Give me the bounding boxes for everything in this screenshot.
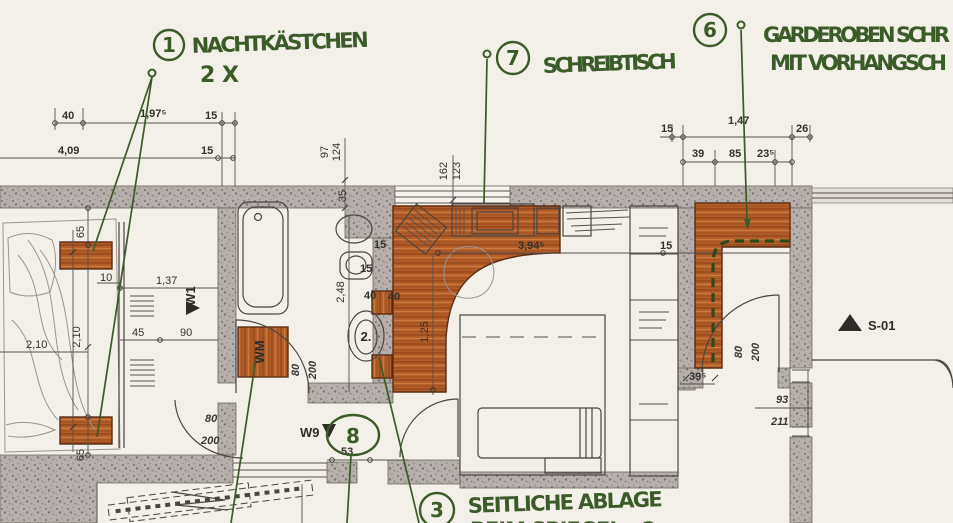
wall-bath-bottom-stub [308,383,393,403]
sofa-step [545,458,601,473]
callout-6-number: 6 [703,18,717,42]
dim-tm-35: 35 [337,190,349,202]
wall-right-mid [790,383,812,427]
room-rect [460,315,605,475]
wall-top-left [0,186,345,208]
bathtub-outer [238,202,288,314]
leader-desk [484,59,487,203]
callout-6-text2: MIT VORHANGSCH [770,51,948,75]
wall-bottom-center [460,472,678,488]
callout-6-text: GARDEROBEN SCHR [763,23,951,47]
dim-tl-40: 40 [62,110,74,122]
dim-tm-123: 123 [451,162,463,180]
dim-tm-124: 124 [331,143,343,161]
wall-bottom-seg1 [327,462,357,483]
s01-divider-line [812,360,953,386]
callout-1-number: 1 [162,33,176,57]
callout-3-text2: BEIM SPIEGEL - 2x [470,518,670,523]
callout-3: 3 SEITLICHE ABLAGE BEIM SPIEGEL - 2x [420,487,670,523]
dim-bed-137: 1,37 [156,275,177,287]
callout-1: 1 NACHTKÄSTCHEN 2X [149,27,371,88]
window-top-right [812,188,953,203]
dim-tr-85: 85 [729,148,741,160]
wall-bath-top-block [345,186,395,238]
callout-1-text: NACHTKÄSTCHEN [191,27,370,58]
sofa-bed-arm-lines [580,408,592,458]
dim-tr-235: 23⁵ [757,148,774,160]
headboard-hatch-top [130,296,154,316]
dim-desk-125: 1,25 [419,321,431,342]
dim-tr-147: 1,47 [728,115,749,127]
dim-corr-80: 80 [733,345,745,358]
dim-bed-65t: 65 [75,226,87,238]
wm-label: WM [252,340,267,363]
bed-blanket-3 [12,320,58,420]
callout-7-number: 7 [506,46,520,70]
callout-3-text: SEITLICHE ABLAGE [467,487,664,518]
dim-vest-200: 200 [200,435,220,447]
callout-8-number: 8 [346,424,360,448]
dim-bed-210v: 2,10 [71,326,83,347]
dim-bed-90: 90 [180,327,192,339]
bed-blanket-4 [40,250,95,430]
bathtub-inner [243,207,283,307]
callout-7: 7 SCHREIBTISCH [484,42,679,78]
wall-bottom-seg2 [388,460,460,484]
headboard-hatch-bottom [130,360,155,386]
nightstand-bottom [60,417,112,444]
wall-bath-left-upper [218,208,236,383]
bed-foot-scribble [6,422,55,437]
dim-tl-15b: 15 [201,145,213,157]
right-room: S-01 [812,314,953,386]
dim-right-211: 211 [770,416,789,428]
dim-bed-210h: 2,10 [26,339,47,351]
dim-bed-10: 10 [100,272,112,284]
dim-desk-40: 40 [388,291,400,303]
wardrobe [695,203,790,368]
dim-bath-15b: 15 [360,263,372,275]
sofa-bed [478,408,601,458]
dim-tm-97: 97 [319,146,331,158]
callout-7-text: SCHREIBTISCH [542,49,678,78]
w1-label: W1 [183,286,198,306]
dim-tl-409: 4,09 [58,145,79,157]
wall-right-lower [790,437,812,523]
toilet-pos-label: 2. [361,329,372,344]
center-room [460,315,605,475]
dim-corr-200: 200 [750,342,762,362]
callout-6-pin [738,22,745,29]
dim-tl-15a: 15 [205,110,217,122]
dim-tl-197: 1,97⁵ [140,108,167,120]
wall-corridor-left [678,208,695,390]
dim-tm-162: 162 [438,162,450,180]
dim-tr-39: 39 [692,148,704,160]
dim-bed-45: 45 [132,327,144,339]
dim-bath-door-80: 80 [290,363,302,376]
dim-bed-65b: 65 [75,449,87,461]
dim-bath-door-200: 200 [307,360,319,380]
callout-1-pin [149,70,156,77]
callout-7-pin [484,51,491,58]
dim-desk-394: 3,94⁵ [518,240,545,252]
dim-vest-80: 80 [205,413,218,425]
dim-corr-395: 39⁵ [689,371,706,383]
dim-bath-15a: 15 [374,239,386,251]
pens [566,210,630,231]
w9-label: W9 [300,425,320,440]
center-door-arc [400,399,458,457]
callout-1-text2: 2X [200,63,240,88]
wall-corridor-jamb [778,368,790,388]
leader-nightstand-1 [93,77,152,251]
wall-right-upper [790,208,812,368]
shelf-column-dividers [630,254,678,420]
dim-tr-26: 26 [796,123,808,135]
dim-bath-40: 40 [364,290,376,302]
s01-label: S-01 [868,318,895,333]
callout-6: 6 GARDEROBEN SCHR MIT VORHANGSCH [694,14,951,75]
s01-triangle-icon [838,314,862,331]
floor-plan-scan: WM 2. [0,0,953,523]
window-w9-lines [233,463,327,477]
dim-desk-15: 15 [660,240,672,252]
dim-right-93: 93 [776,394,788,406]
callout-3-number: 3 [430,498,444,522]
wall-bath-left-lower [218,403,236,455]
desk-box-2 [563,206,591,236]
dim-tr-15: 15 [661,123,673,135]
floor-plan-drawing: WM 2. [0,0,953,523]
dim-bath-248: 2,48 [335,281,347,302]
bathtub-drain [255,214,262,221]
right-room-door-arc [935,360,953,388]
